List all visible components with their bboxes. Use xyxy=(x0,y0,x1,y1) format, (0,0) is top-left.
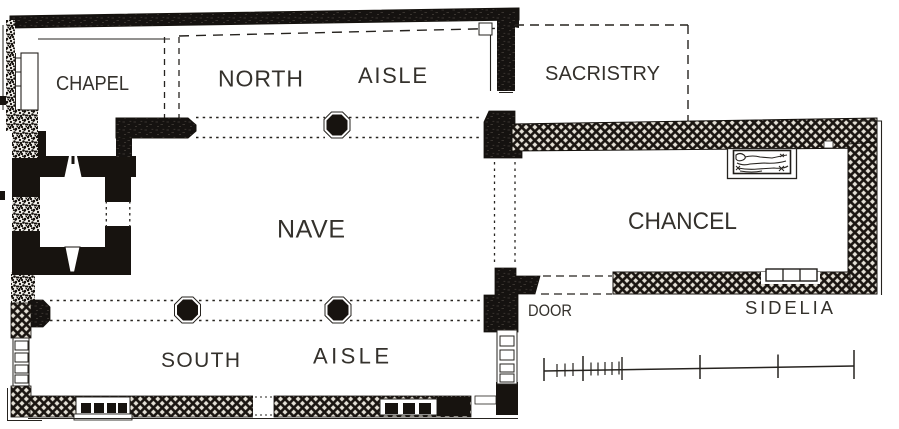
svg-text:CHANCEL: CHANCEL xyxy=(628,208,737,235)
svg-text:AISLE: AISLE xyxy=(358,63,427,88)
svg-text:NAVE: NAVE xyxy=(277,216,345,244)
svg-text:SACRISTRY: SACRISTRY xyxy=(545,63,660,85)
svg-text:NORTH: NORTH xyxy=(218,66,303,92)
svg-text:CHAPEL: CHAPEL xyxy=(56,73,129,95)
svg-text:DOOR: DOOR xyxy=(528,301,572,320)
svg-text:SOUTH: SOUTH xyxy=(161,349,240,372)
svg-text:AISLE: AISLE xyxy=(313,344,389,369)
